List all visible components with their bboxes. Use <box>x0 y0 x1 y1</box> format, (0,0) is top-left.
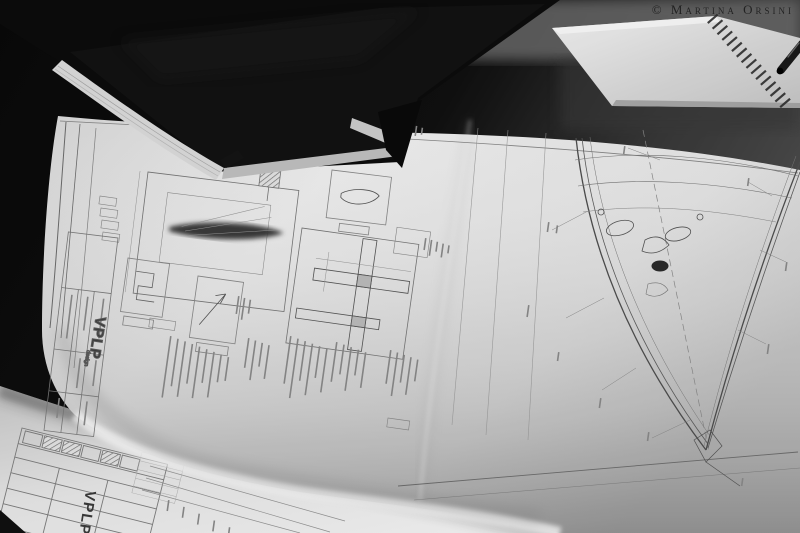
photo-scene: VPLP <box>0 0 800 533</box>
photo-credit: © Martina Orsini <box>652 2 794 18</box>
